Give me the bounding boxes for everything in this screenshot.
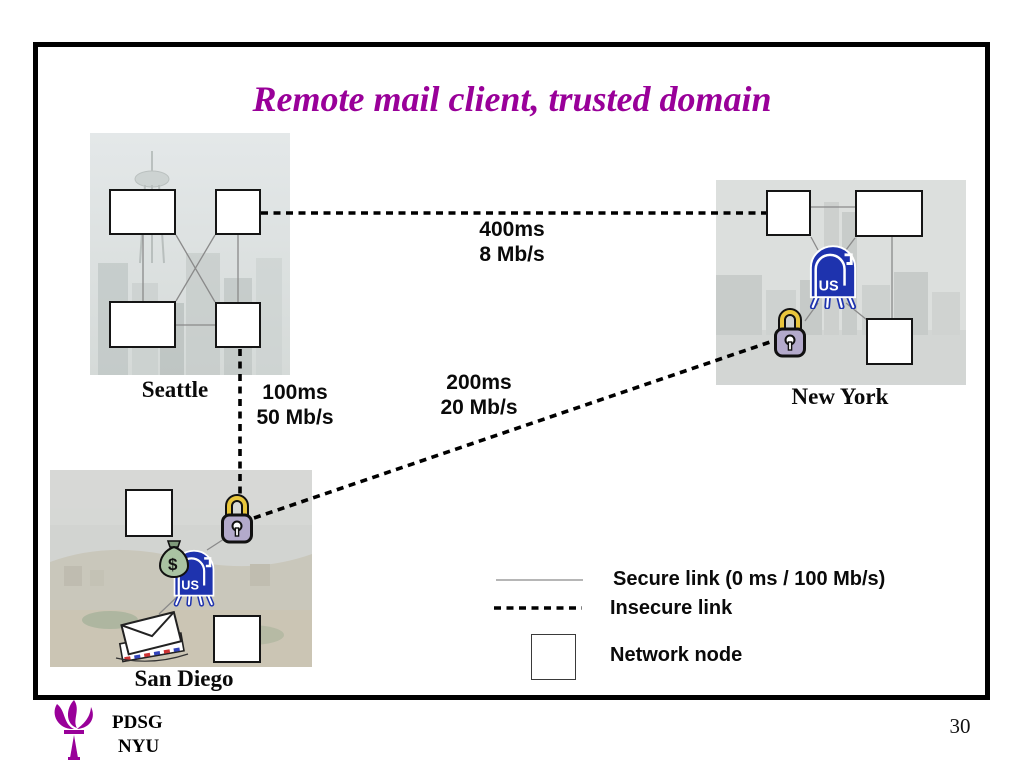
network-node	[215, 302, 261, 348]
legend-node-swatch	[531, 634, 576, 680]
network-node	[855, 190, 923, 237]
network-node	[766, 190, 811, 236]
envelopes-icon	[112, 608, 194, 664]
mailbox-us-label: US	[181, 579, 199, 593]
footer-school-label: NYU	[118, 736, 159, 758]
city-label-san-diego: San Diego	[114, 666, 254, 692]
slide: Remote mail client, trusted domain	[0, 0, 1024, 768]
mailbox-icon: US	[808, 243, 858, 309]
link-label-seattle-sandiego: 100ms 50 Mb/s	[233, 380, 357, 430]
city-label-new-york: New York	[770, 384, 910, 410]
latency-value: 400ms	[450, 217, 574, 242]
legend-insecure-label: Insecure link	[610, 597, 732, 620]
link-label-seattle-newyork: 400ms 8 Mb/s	[450, 217, 574, 267]
network-node	[125, 489, 173, 537]
link-label-sandiego-newyork: 200ms 20 Mb/s	[417, 370, 541, 420]
mailbox-us-label: US	[819, 278, 839, 294]
network-node	[109, 301, 176, 348]
network-node	[866, 318, 913, 365]
legend-secure-label: Secure link (0 ms / 100 Mb/s)	[613, 568, 885, 591]
bandwidth-value: 50 Mb/s	[233, 405, 357, 430]
bandwidth-value: 8 Mb/s	[450, 242, 574, 267]
latency-value: 100ms	[233, 380, 357, 405]
city-label-seattle: Seattle	[105, 377, 245, 403]
padlock-icon	[219, 490, 255, 546]
bandwidth-value: 20 Mb/s	[417, 395, 541, 420]
network-node	[213, 615, 261, 663]
network-node	[109, 189, 176, 235]
latency-value: 200ms	[417, 370, 541, 395]
footer-org-label: PDSG	[112, 712, 163, 734]
legend-node-label: Network node	[610, 644, 742, 667]
nyu-torch-icon	[46, 700, 102, 762]
network-node	[215, 189, 261, 235]
dollar-sign: $	[168, 555, 178, 574]
money-bag-icon: $	[156, 538, 192, 580]
page-number: 30	[930, 714, 990, 739]
slide-title: Remote mail client, trusted domain	[0, 78, 1024, 120]
padlock-icon	[772, 304, 808, 360]
